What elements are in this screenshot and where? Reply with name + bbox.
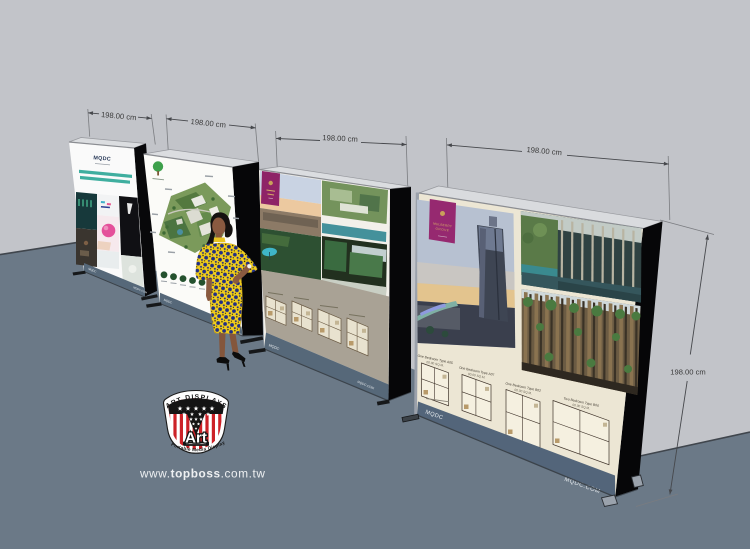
svg-text:198.00 cm: 198.00 cm bbox=[670, 368, 705, 377]
svg-text:198.00 cm: 198.00 cm bbox=[322, 133, 358, 144]
svg-text:Art: Art bbox=[185, 430, 207, 447]
svg-text:www.topboss.com.tw: www.topboss.com.tw bbox=[139, 467, 266, 481]
